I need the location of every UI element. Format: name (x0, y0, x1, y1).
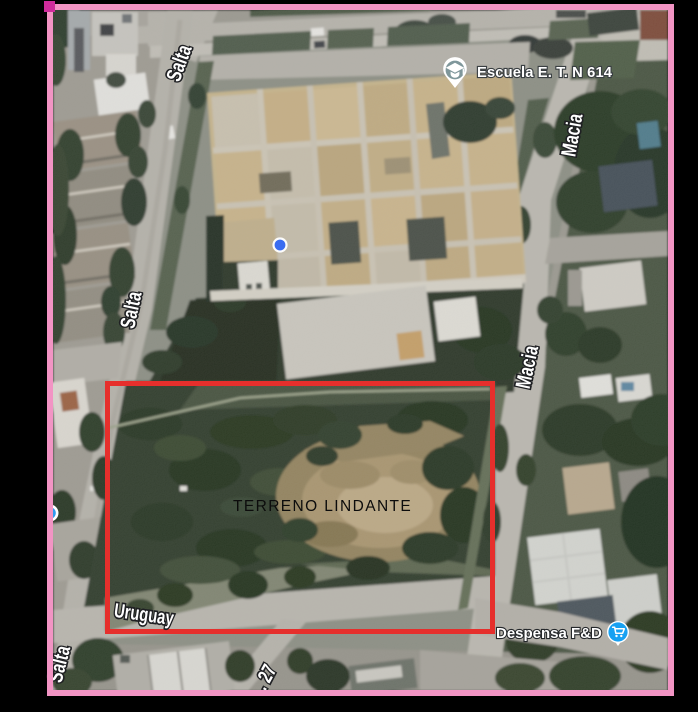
svg-text:TERRENO LINDANTE: TERRENO LINDANTE (233, 498, 412, 515)
svg-text:Escuela E. T. N 614: Escuela E. T. N 614 (477, 65, 613, 81)
svg-text:Despensa F&D: Despensa F&D (496, 625, 602, 642)
